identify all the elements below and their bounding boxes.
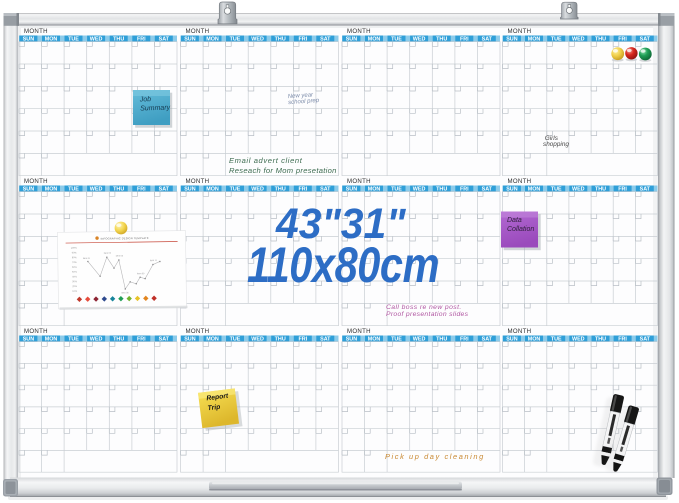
svg-text:INFOGRAPHIC DESIGN TEMPLATE: INFOGRAPHIC DESIGN TEMPLATE <box>101 236 149 241</box>
svg-text:100%: 100% <box>71 247 78 250</box>
svg-text:Item 09: Item 09 <box>137 272 145 275</box>
svg-text:MONTH: MONTH <box>24 328 48 335</box>
svg-text:Item 11: Item 11 <box>150 259 158 262</box>
svg-text:MONTH: MONTH <box>186 328 210 335</box>
svg-text:MONTH: MONTH <box>347 28 371 35</box>
svg-text:Item 03: Item 03 <box>104 252 112 255</box>
svg-text:MONTH: MONTH <box>508 178 532 185</box>
svg-text:MONTH: MONTH <box>508 328 532 335</box>
svg-text:MONTH: MONTH <box>186 178 210 185</box>
svg-text:Item 01: Item 01 <box>83 257 91 260</box>
svg-text:Item 05: Item 05 <box>116 254 124 257</box>
svg-text:MONTH: MONTH <box>508 28 532 35</box>
svg-text:MONTH: MONTH <box>347 178 371 185</box>
svg-text:MONTH: MONTH <box>186 28 210 35</box>
svg-text:MONTH: MONTH <box>347 328 371 335</box>
svg-text:Item 06: Item 06 <box>121 291 129 294</box>
svg-text:MONTH: MONTH <box>24 178 48 185</box>
svg-text:MONTH: MONTH <box>24 28 48 35</box>
